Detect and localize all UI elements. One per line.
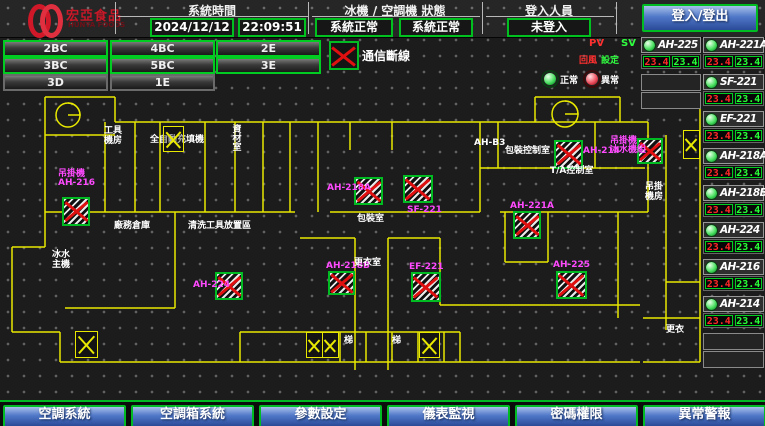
room-label: 梯 xyxy=(392,337,401,347)
machine-icon-AH-218B[interactable] xyxy=(328,271,355,295)
room-label: 工具 機房 xyxy=(104,127,122,146)
unit-name-label: AH-218B xyxy=(720,187,765,199)
abnormal-led-icon xyxy=(585,72,599,86)
unit-pv-value: 23.4 xyxy=(705,241,733,252)
unit-slot-empty xyxy=(703,333,764,350)
pv-sub-header: 回風 xyxy=(579,53,597,66)
machine-icon-AH-216[interactable] xyxy=(62,197,90,226)
room-label: AH-B3 xyxy=(474,139,505,149)
sv-header: SV xyxy=(621,38,636,49)
stairs-icon xyxy=(75,331,98,358)
header-divider xyxy=(616,2,617,34)
stairs-icon xyxy=(163,126,184,152)
login-logout-button[interactable]: 登入/登出 xyxy=(642,4,758,32)
room-label: T/A控制室 xyxy=(550,167,593,177)
header-divider xyxy=(312,16,480,17)
unit-name-label: AH-218A xyxy=(720,150,765,162)
chiller-status-value: 系統正常 xyxy=(315,18,393,37)
unit-slot-empty xyxy=(641,92,701,109)
unit-status-led xyxy=(706,188,717,199)
unit-sv-value: 23.4 xyxy=(735,241,763,252)
machine-label: AH-221A xyxy=(510,202,554,211)
comm-loss-icon xyxy=(329,41,359,70)
machine-label: SF-221 xyxy=(407,206,442,215)
unit-status-led xyxy=(706,262,717,273)
unit-pv-value: 23.4 xyxy=(705,130,733,141)
machine-label: 吊掛機 冰水機組 xyxy=(610,137,646,155)
floor-button-4BC[interactable]: 4BC xyxy=(110,40,215,57)
unit-pv-value: 23.4 xyxy=(643,56,670,67)
floor-button-2E[interactable]: 2E xyxy=(216,40,321,57)
unit-name-label: AH-225 xyxy=(658,39,698,51)
unit-sv-value: 23.4 xyxy=(735,167,763,178)
unit-pv-value: 23.4 xyxy=(705,315,733,326)
unit-AH-214[interactable]: AH-214 xyxy=(703,296,764,312)
unit-status-led xyxy=(706,225,717,236)
room-label: 更衣 xyxy=(666,326,684,336)
unit-slot-empty xyxy=(703,351,764,368)
hmi-screen: 宏亞食品 HUNYA FOODS 系統時間 2024/12/12 22:09:5… xyxy=(0,0,765,426)
footer-button-5[interactable]: 密碼權限 xyxy=(515,405,638,426)
unit-name-label: AH-221A xyxy=(720,39,765,51)
unit-sv-value: 23.4 xyxy=(672,56,699,67)
unit-sv-value: 23.4 xyxy=(735,56,763,67)
floor-button-3E[interactable]: 3E xyxy=(216,57,321,74)
header-divider xyxy=(308,2,309,34)
room-label: 梯 xyxy=(344,337,353,347)
header-divider xyxy=(115,2,116,34)
unit-AH-224-values: 23.423.4 xyxy=(703,239,764,254)
unit-pv-value: 23.4 xyxy=(705,93,733,104)
header-bar: 宏亞食品 HUNYA FOODS 系統時間 2024/12/12 22:09:5… xyxy=(0,0,765,38)
unit-AH-218A[interactable]: AH-218A xyxy=(703,148,764,164)
logo-subtitle: HUNYA FOODS xyxy=(68,21,125,29)
machine-icon-SF-221[interactable] xyxy=(403,175,433,203)
stairs-icon xyxy=(683,130,700,159)
machine-label: AH-224 xyxy=(193,281,230,290)
floor-button-2BC[interactable]: 2BC xyxy=(3,40,108,57)
unit-SF-221-values: 23.423.4 xyxy=(703,91,764,106)
unit-status-led xyxy=(706,151,717,162)
unit-AH-218B[interactable]: AH-218B xyxy=(703,185,764,201)
abnormal-legend-label: 異常 xyxy=(601,73,619,86)
footer-bar: 空調系統空調箱系統參數設定儀表監視密碼權限異常警報 xyxy=(0,400,765,426)
comm-loss-label: 通信斷線 xyxy=(362,47,410,64)
room-label: 資材室 xyxy=(230,124,240,151)
machine-label: EF-221 xyxy=(409,263,444,272)
unit-AH-225[interactable]: AH-225 xyxy=(641,37,701,53)
unit-AH-214-values: 23.423.4 xyxy=(703,313,764,328)
unit-pv-value: 23.4 xyxy=(705,167,733,178)
unit-pv-value: 23.4 xyxy=(705,56,733,67)
floor-button-5BC[interactable]: 5BC xyxy=(110,57,215,74)
unit-SF-221[interactable]: SF-221 xyxy=(703,74,764,90)
room-label: 吊掛 機房 xyxy=(645,183,663,202)
unit-AH-221A-values: 23.423.4 xyxy=(703,54,764,69)
normal-led-icon xyxy=(543,72,557,86)
footer-button-2[interactable]: 空調箱系統 xyxy=(131,405,254,426)
footer-button-6[interactable]: 異常警報 xyxy=(643,405,765,426)
floor-button-3D[interactable]: 3D xyxy=(3,74,108,91)
normal-legend-label: 正常 xyxy=(560,73,578,86)
unit-status-led xyxy=(706,299,717,310)
unit-AH-225-values: 23.423.4 xyxy=(641,54,701,69)
room-label: 廠務倉庫 xyxy=(114,222,150,232)
footer-button-3[interactable]: 參數設定 xyxy=(259,405,382,426)
footer-button-1[interactable]: 空調系統 xyxy=(3,405,126,426)
stairs-icon xyxy=(306,332,323,358)
machine-icon-AH-221A[interactable] xyxy=(513,211,541,239)
unit-AH-218A-values: 23.423.4 xyxy=(703,165,764,180)
pv-header: PV xyxy=(589,38,604,49)
unit-name-label: SF-221 xyxy=(720,76,757,88)
room-label: 清洗工具放置區 xyxy=(188,222,251,232)
header-divider xyxy=(118,16,308,17)
unit-name-label: AH-224 xyxy=(720,224,760,236)
login-user-value: 未登入 xyxy=(507,18,591,37)
system-date-value: 2024/12/12 xyxy=(150,18,234,37)
header-divider xyxy=(486,16,614,17)
unit-name-label: AH-214 xyxy=(720,298,760,310)
ahu-status-value: 系統正常 xyxy=(399,18,473,37)
unit-status-led xyxy=(644,40,655,51)
unit-EF-221[interactable]: EF-221 xyxy=(703,111,764,127)
floorplan: 吊掛機 AH-216AH-224AH-218ASF-221AH-218BEF-2… xyxy=(0,92,765,400)
machine-icon-AH-214[interactable] xyxy=(554,140,583,169)
system-time-value: 22:09:51 xyxy=(238,18,306,37)
logo-icon xyxy=(28,4,62,32)
unit-AH-218B-values: 23.423.4 xyxy=(703,202,764,217)
unit-sv-value: 23.4 xyxy=(735,204,763,215)
machine-icon-AH-225[interactable] xyxy=(556,271,587,299)
unit-sv-value: 23.4 xyxy=(735,315,763,326)
unit-slot-empty xyxy=(641,74,701,91)
machine-icon-EF-221[interactable] xyxy=(411,272,441,302)
unit-AH-224[interactable]: AH-224 xyxy=(703,222,764,238)
room-label: 更衣室 xyxy=(354,259,381,269)
unit-sv-value: 23.4 xyxy=(735,278,763,289)
floor-button-3BC[interactable]: 3BC xyxy=(3,57,108,74)
unit-AH-216-values: 23.423.4 xyxy=(703,276,764,291)
unit-status-led xyxy=(706,40,717,51)
header-divider xyxy=(482,2,483,34)
footer-button-4[interactable]: 儀表監視 xyxy=(387,405,510,426)
unit-sv-value: 23.4 xyxy=(735,93,763,104)
unit-AH-221A[interactable]: AH-221A xyxy=(703,37,764,53)
unit-pv-value: 23.4 xyxy=(705,204,733,215)
unit-name-label: EF-221 xyxy=(720,113,757,125)
unit-AH-216[interactable]: AH-216 xyxy=(703,259,764,275)
unit-EF-221-values: 23.423.4 xyxy=(703,128,764,143)
room-label: 包裝控制室 xyxy=(505,147,550,157)
machine-label: 吊掛機 AH-216 xyxy=(58,170,95,188)
unit-status-led xyxy=(706,77,717,88)
room-label: 冰水 主機 xyxy=(52,251,70,270)
room-label: 包裝室 xyxy=(357,215,384,225)
unit-status-led xyxy=(706,114,717,125)
machine-label: AH-225 xyxy=(553,261,590,270)
unit-sv-value: 23.4 xyxy=(735,130,763,141)
sv-sub-header: 設定 xyxy=(601,53,619,66)
stairs-icon xyxy=(322,332,339,358)
floor-button-1E[interactable]: 1E xyxy=(110,74,215,91)
stairs-icon xyxy=(419,332,440,358)
machine-label: AH-218A xyxy=(327,184,371,193)
unit-pv-value: 23.4 xyxy=(705,278,733,289)
unit-name-label: AH-216 xyxy=(720,261,760,273)
